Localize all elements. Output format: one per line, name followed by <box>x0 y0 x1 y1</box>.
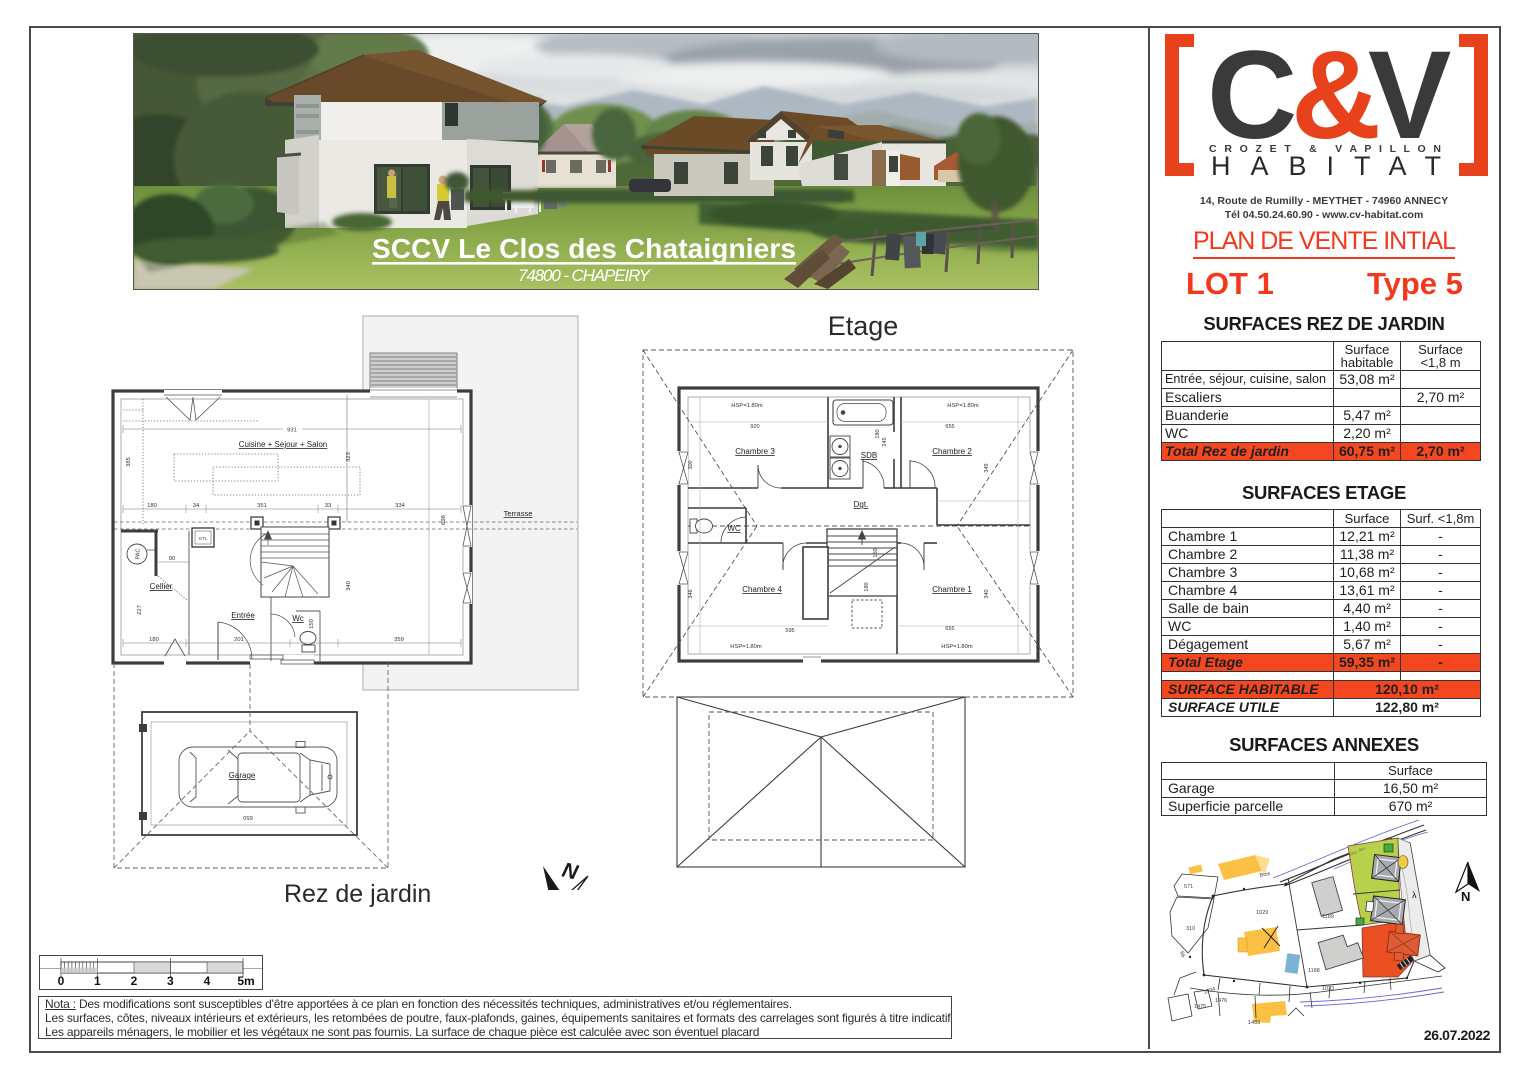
svg-text:650: 650 <box>243 814 253 820</box>
svg-text:5m: 5m <box>237 974 254 988</box>
svg-text:655: 655 <box>945 424 954 430</box>
svg-text:920: 920 <box>750 424 759 430</box>
svg-text:180: 180 <box>864 582 870 591</box>
svg-text:Dgt.: Dgt. <box>854 500 869 509</box>
svg-text:1: 1 <box>94 974 101 988</box>
svg-text:245: 245 <box>882 437 888 446</box>
svg-text:34: 34 <box>193 503 200 509</box>
svg-text:2: 2 <box>131 974 138 988</box>
svg-text:340: 340 <box>984 589 990 598</box>
svg-text:3: 3 <box>167 974 174 988</box>
svg-text:N: N <box>560 859 581 885</box>
svg-text:74800 - CHAPEIRY: 74800 - CHAPEIRY <box>518 266 652 285</box>
svg-text:λ: λ <box>1412 890 1417 900</box>
svg-text:GTL: GTL <box>199 536 208 541</box>
svg-text:359: 359 <box>394 637 404 643</box>
svg-text:N: N <box>1461 889 1470 904</box>
svg-text:Bois: Bois <box>1259 871 1271 879</box>
svg-text:Wc: Wc <box>292 614 304 623</box>
svg-text:180: 180 <box>875 429 881 438</box>
svg-text:Etage: Etage <box>828 311 899 341</box>
svg-text:Entrée: Entrée <box>231 611 255 620</box>
svg-text:Chambre 4: Chambre 4 <box>742 585 782 594</box>
svg-text:Chambre 2: Chambre 2 <box>932 447 972 456</box>
svg-text:HSP=1.80m: HSP=1.80m <box>731 403 763 409</box>
svg-text:1475: 1475 <box>1194 1004 1206 1010</box>
svg-text:698: 698 <box>441 515 447 525</box>
svg-text:PAC: PAC <box>136 549 142 560</box>
svg-text:180: 180 <box>149 637 159 643</box>
svg-text:227: 227 <box>137 605 143 615</box>
svg-text:1489: 1489 <box>1248 1020 1260 1025</box>
svg-text:33: 33 <box>325 503 331 509</box>
svg-text:90: 90 <box>169 556 175 562</box>
svg-text:SDB: SDB <box>861 451 877 460</box>
svg-text:300: 300 <box>688 460 694 469</box>
svg-text:Garage: Garage <box>229 771 256 780</box>
svg-text:310: 310 <box>1186 926 1195 932</box>
svg-text:1033: 1033 <box>1322 986 1334 992</box>
svg-text:0: 0 <box>58 974 65 988</box>
svg-text:1188: 1188 <box>1308 968 1320 974</box>
svg-text:Cellier: Cellier <box>150 582 173 591</box>
svg-text:385: 385 <box>126 457 132 467</box>
svg-text:160: 160 <box>873 548 879 557</box>
svg-text:C R O Z E T & V A P I L L: C R O Z E T & V A P I L L O N <box>1209 143 1441 155</box>
svg-text:1029: 1029 <box>1256 910 1268 916</box>
svg-text:931: 931 <box>287 428 297 434</box>
svg-text:150: 150 <box>309 619 315 629</box>
svg-text:655: 655 <box>945 626 954 632</box>
svg-text:SCCV Le Clos des Chataigniers: SCCV Le Clos des Chataigniers <box>372 233 796 264</box>
svg-text:334: 334 <box>395 503 405 509</box>
svg-text:66: 66 <box>1178 951 1186 959</box>
svg-text:HSP=1.80m: HSP=1.80m <box>730 644 762 650</box>
svg-text:201: 201 <box>234 637 244 643</box>
svg-text:WC: WC <box>727 524 741 533</box>
svg-text:Chambre 1: Chambre 1 <box>932 585 972 594</box>
svg-text:180: 180 <box>147 503 157 509</box>
svg-text:346: 346 <box>688 589 694 598</box>
svg-text:HSP=1.80m: HSP=1.80m <box>941 644 973 650</box>
svg-text:349: 349 <box>984 463 990 472</box>
svg-text:Terrasse: Terrasse <box>504 509 533 518</box>
svg-text:1476: 1476 <box>1215 998 1227 1004</box>
svg-text:351: 351 <box>257 503 267 509</box>
svg-text:340: 340 <box>346 581 352 591</box>
svg-text:595: 595 <box>785 628 794 634</box>
svg-text:4: 4 <box>204 974 211 988</box>
svg-text:1189: 1189 <box>1322 914 1334 920</box>
svg-text:Chambre 3: Chambre 3 <box>735 447 775 456</box>
svg-text:HSP=1.80m: HSP=1.80m <box>947 403 979 409</box>
svg-text:Cuisine + Sejour + Salon: Cuisine + Sejour + Salon <box>239 440 328 449</box>
svg-text:323: 323 <box>346 452 352 462</box>
svg-text:571: 571 <box>1184 884 1193 890</box>
